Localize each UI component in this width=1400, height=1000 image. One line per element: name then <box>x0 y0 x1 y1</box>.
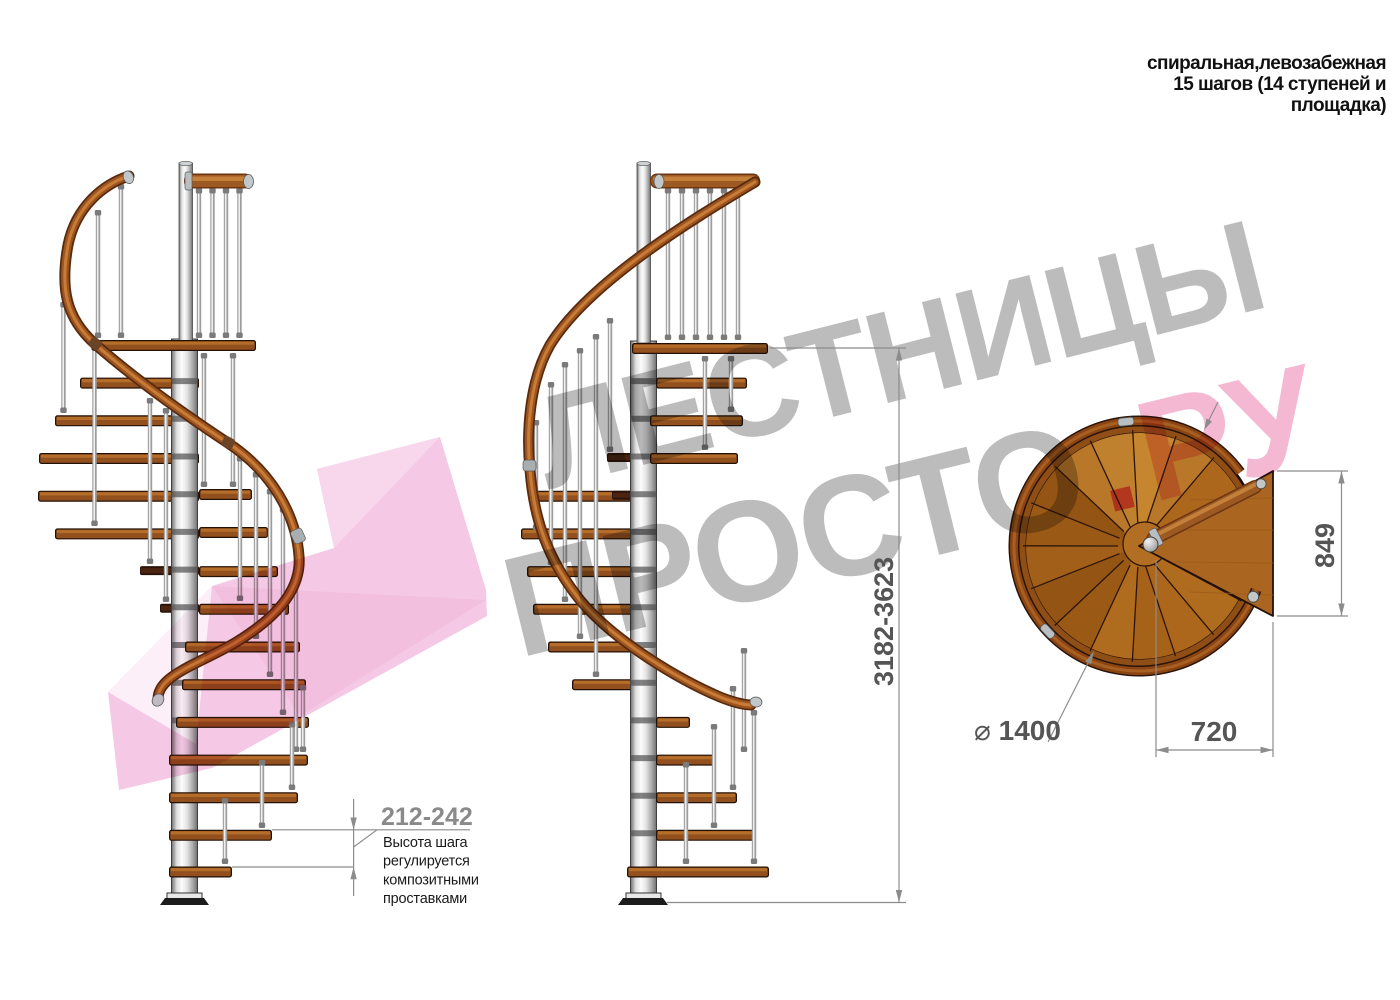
svg-text:720: 720 <box>1191 716 1238 747</box>
svg-text:849: 849 <box>1310 523 1340 568</box>
svg-text:3182-3623: 3182-3623 <box>869 557 899 686</box>
svg-text:⌀ 1400: ⌀ 1400 <box>974 715 1061 746</box>
svg-text:212-242: 212-242 <box>381 803 473 831</box>
